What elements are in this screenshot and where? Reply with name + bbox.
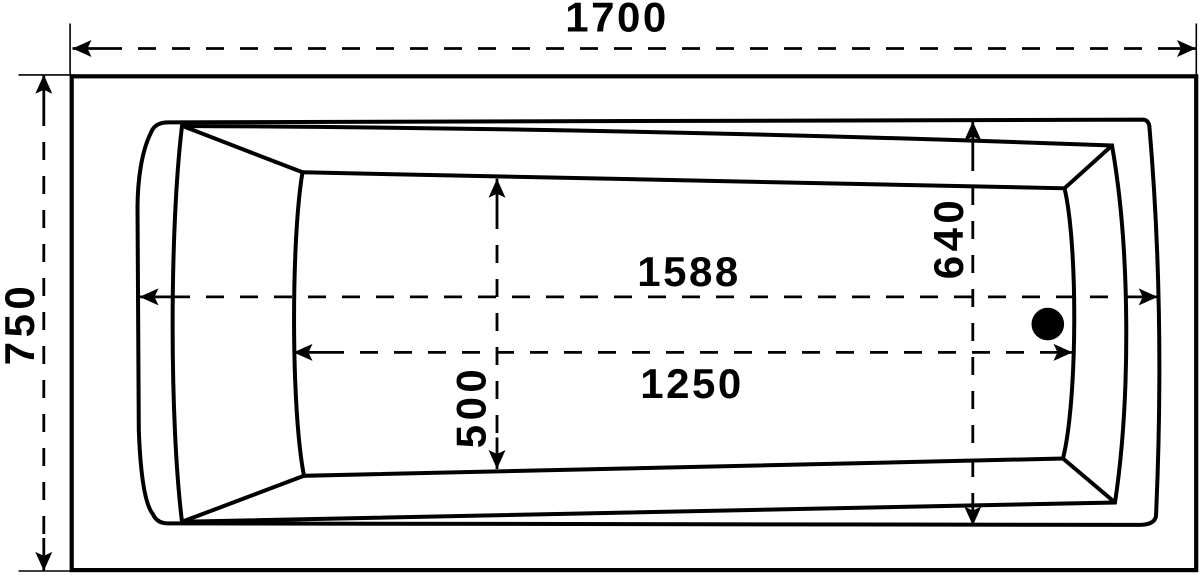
svg-text:1250: 1250	[640, 360, 743, 407]
svg-text:1700: 1700	[565, 0, 668, 40]
svg-text:500: 500	[448, 365, 495, 449]
svg-text:750: 750	[0, 282, 43, 366]
svg-text:640: 640	[925, 196, 972, 280]
svg-text:1588: 1588	[637, 248, 740, 295]
